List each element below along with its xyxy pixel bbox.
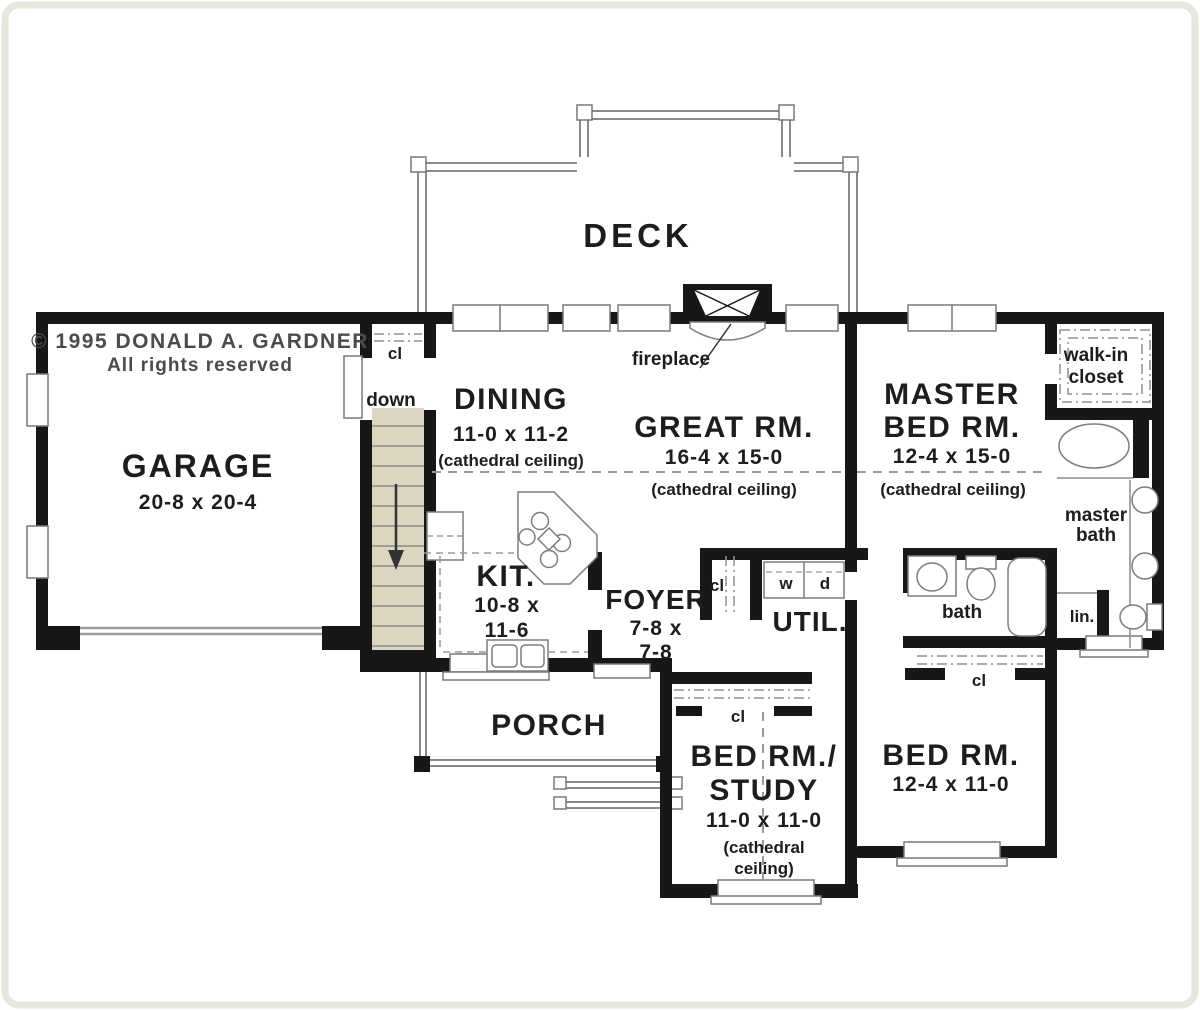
washer-label: w	[778, 574, 793, 593]
room-dims-foyer-line2: 7-8	[639, 641, 672, 664]
bath-tub	[1008, 558, 1046, 636]
bath-label: bath	[942, 602, 982, 623]
kitchen-sink-bowl-left	[492, 645, 517, 667]
room-label-garage: GARAGE	[122, 448, 274, 484]
room-label-utility: UTIL.	[773, 606, 848, 637]
room-ceiling-great-room: (cathedral ceiling)	[651, 480, 796, 499]
master-bath-label-line2: bath	[1076, 525, 1116, 546]
master-sink-2	[1132, 553, 1158, 579]
kitchen-sink-bowl-right	[521, 645, 544, 667]
bath-sink	[917, 563, 947, 591]
room-label-kitchen: KIT.	[476, 560, 535, 593]
closet-label-bedroom-study: cl	[731, 707, 745, 726]
utility-fixtures	[764, 562, 844, 598]
down-label: down	[366, 390, 416, 411]
walk-in-closet-label-line2: closet	[1069, 367, 1125, 388]
room-label-master-line1: MASTER	[884, 378, 1020, 411]
window-bedroom2-sill	[897, 858, 1007, 866]
master-tub	[1059, 424, 1129, 468]
copyright-line1: © 1995 DONALD A. GARDNER	[31, 330, 369, 353]
garage-door-opening	[80, 628, 322, 634]
window-master-bath-sill	[1080, 650, 1148, 657]
room-label-dining: DINING	[454, 383, 568, 416]
stair-run	[372, 408, 424, 650]
master-toilet	[1120, 605, 1146, 629]
master-bath-label-line1: master	[1065, 505, 1128, 526]
room-ceiling-bedroom-study-line2: ceiling)	[734, 859, 794, 878]
room-label-bedroom-study-line1: BED RM./	[691, 740, 838, 773]
window-great-room-center	[618, 305, 670, 331]
room-dims-great-room: 16-4 x 15-0	[665, 446, 783, 469]
fireplace-hearth	[690, 322, 765, 340]
room-dims-bedroom-study: 11-0 x 11-0	[706, 809, 822, 832]
room-label-deck: DECK	[583, 217, 693, 254]
room-dims-dining: 11-0 x 11-2	[453, 423, 569, 446]
room-label-porch: PORCH	[491, 709, 607, 742]
staircase	[372, 408, 424, 650]
window-garage-upper	[27, 374, 48, 426]
room-ceiling-bedroom-study-line1: (cathedral	[723, 838, 804, 857]
bath-toilet-tank	[966, 556, 996, 569]
master-toilet-tank	[1147, 604, 1162, 630]
walk-in-closet-shelves-outer	[1060, 330, 1150, 402]
floor-plan: © 1995 DONALD A. GARDNER All rights rese…	[0, 0, 1200, 1010]
room-dims-garage: 20-8 x 20-4	[139, 491, 257, 514]
linen-label: lin.	[1070, 607, 1095, 626]
closet-label-foyer: cl	[710, 576, 724, 595]
bath-toilet	[967, 568, 995, 600]
window-great-room-left	[563, 305, 610, 331]
dryer-label: d	[820, 574, 830, 593]
room-label-bedroom2: BED RM.	[882, 739, 1019, 772]
room-ceiling-dining: (cathedral ceiling)	[438, 451, 583, 470]
copyright-line2: All rights reserved	[107, 355, 293, 376]
room-dims-kitchen-line2: 11-6	[485, 619, 530, 642]
room-dims-master: 12-4 x 15-0	[893, 445, 1011, 468]
window-bedroom-study-sill	[711, 896, 821, 904]
garage-entry-door	[344, 356, 362, 418]
room-dims-kitchen-line1: 10-8 x	[474, 594, 540, 617]
master-sink-1	[1132, 487, 1158, 513]
room-ceiling-master: (cathedral ceiling)	[880, 480, 1025, 499]
front-door	[594, 664, 650, 678]
fireplace-label: fireplace	[632, 349, 710, 370]
deck-railing	[411, 105, 858, 312]
window-kitchen-sill	[443, 672, 549, 680]
closet-label-bedroom2: cl	[972, 671, 986, 690]
bath-fixtures	[908, 556, 1046, 636]
room-label-foyer: FOYER	[605, 584, 706, 615]
closet-label-stairs: cl	[388, 344, 402, 363]
room-label-great-room: GREAT RM.	[634, 411, 814, 444]
room-dims-foyer-line1: 7-8 x	[630, 617, 683, 640]
room-label-bedroom-study-line2: STUDY	[709, 774, 818, 807]
room-dims-bedroom2: 12-4 x 11-0	[892, 773, 1009, 796]
window-great-room-right	[786, 305, 838, 331]
walk-in-closet-label-line1: walk-in	[1063, 345, 1128, 366]
window-garage-lower	[27, 526, 48, 578]
room-label-master-line2: BED RM.	[883, 411, 1020, 444]
deck-rail-lines	[418, 111, 857, 312]
